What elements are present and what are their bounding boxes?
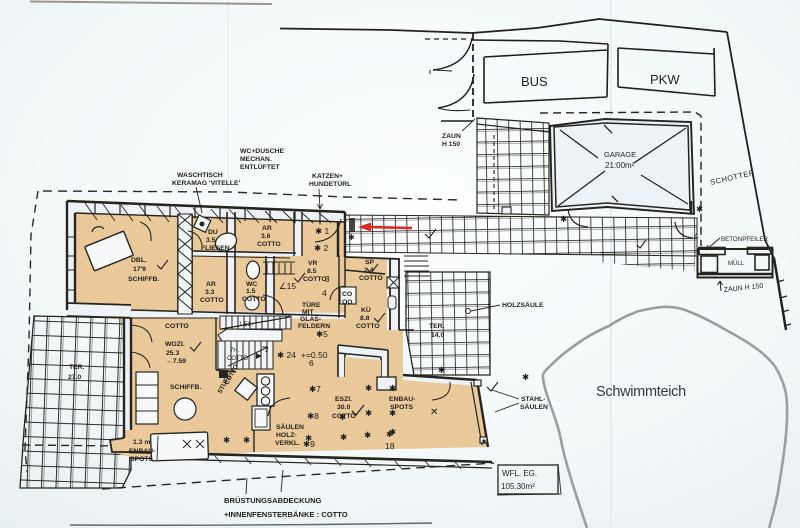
svg-text:CO: CO [342, 291, 352, 298]
svg-text:MIT: MIT [302, 309, 315, 316]
svg-text:TER.: TER. [69, 364, 85, 371]
svg-text:DU: DU [208, 229, 218, 236]
svg-text:WC+DUSCHE: WC+DUSCHE [240, 148, 284, 155]
svg-text:1.51↑: 1.51↑ [239, 322, 254, 328]
svg-text:COTTO: COTTO [356, 323, 380, 330]
svg-text:✱: ✱ [696, 204, 703, 214]
svg-text:SPOTS: SPOTS [130, 456, 154, 463]
svg-text:✱: ✱ [365, 408, 372, 418]
svg-text:COTTO: COTTO [332, 413, 356, 420]
svg-text:KERAMAG 'VITELLE': KERAMAG 'VITELLE' [172, 180, 241, 187]
svg-text:27.0: 27.0 [68, 374, 81, 381]
svg-text:COTTO: COTTO [242, 296, 266, 303]
svg-text:✱ 1: ✱ 1 [315, 226, 329, 236]
svg-text:+=0.50: +=0.50 [301, 350, 328, 360]
svg-text:DBL.: DBL. [131, 257, 147, 264]
svg-text:HUNDETÜRL: HUNDETÜRL [309, 179, 351, 188]
svg-text:✱: ✱ [560, 214, 567, 224]
svg-text:✱: ✱ [438, 365, 445, 375]
svg-text:✱: ✱ [340, 432, 347, 442]
svg-text:✱8: ✱8 [307, 411, 319, 421]
svg-text:STAHL-: STAHL- [521, 396, 545, 403]
svg-text:25.3: 25.3 [166, 350, 179, 357]
svg-text:GLAS-: GLAS- [300, 316, 321, 323]
svg-text:TER.: TER. [429, 323, 445, 330]
svg-text:VR: VR [308, 260, 318, 267]
svg-text:✕: ✕ [430, 407, 438, 418]
svg-text:1.5: 1.5 [246, 288, 256, 295]
svg-text:Schwimmteich: Schwimmteich [596, 384, 686, 400]
svg-text:ENTLÜFTET: ENTLÜFTET [240, 162, 280, 171]
svg-text:WFL. EG.: WFL. EG. [502, 469, 537, 478]
svg-text:✱ 2: ✱ 2 [314, 243, 328, 253]
svg-text:3.6: 3.6 [261, 233, 271, 240]
svg-text:MÜLL: MÜLL [728, 260, 745, 267]
svg-text:WC: WC [246, 281, 257, 288]
svg-text:✱: ✱ [386, 429, 393, 439]
svg-text:SP: SP [365, 259, 375, 266]
svg-text:COTTO: COTTO [165, 323, 189, 330]
svg-text:SCHIFFB.: SCHIFFB. [170, 384, 201, 391]
svg-text:COTTO: COTTO [227, 356, 248, 362]
svg-text:ENBAU-: ENBAU- [389, 396, 415, 403]
svg-text:8.5: 8.5 [307, 268, 317, 275]
svg-text:WOZI.: WOZI. [165, 341, 185, 348]
svg-text:COTTO: COTTO [200, 297, 224, 304]
svg-text:WASCHTISCH: WASCHTISCH [177, 172, 223, 179]
svg-text:AR: AR [206, 281, 216, 288]
svg-text:ZAUN: ZAUN [442, 133, 461, 140]
svg-text:HOLZ-: HOLZ- [276, 432, 297, 439]
svg-text:30.0: 30.0 [337, 404, 350, 411]
svg-text:✱: ✱ [364, 430, 371, 440]
svg-text:ENBAU-: ENBAU- [129, 448, 155, 455]
svg-text:KÜ: KÜ [361, 305, 371, 314]
svg-text:KATZEN+: KATZEN+ [312, 173, 343, 180]
svg-text:✱7: ✱7 [309, 384, 321, 394]
svg-text:ESZI.: ESZI. [335, 396, 352, 403]
svg-text:MECHAN.: MECHAN. [240, 156, 272, 163]
svg-text:105.30m²: 105.30m² [501, 482, 535, 491]
svg-text:SPOTS: SPOTS [390, 404, 414, 411]
svg-text:8.8: 8.8 [360, 315, 370, 322]
svg-text:FLIESEN: FLIESEN [201, 245, 230, 252]
svg-text:21:00m²: 21:00m² [605, 161, 635, 170]
svg-text:SCHIFFB.: SCHIFFB. [128, 276, 159, 283]
svg-text:AR: AR [262, 225, 272, 232]
svg-text:BRÜSTUNGSABDECKUNG: BRÜSTUNGSABDECKUNG [224, 496, 322, 505]
svg-text:COTTO: COTTO [303, 276, 327, 283]
svg-text:+INNENFENSTERBÄNKE : COTTO: +INNENFENSTERBÄNKE : COTTO [224, 510, 348, 519]
svg-text:TÜRE: TÜRE [302, 300, 321, 309]
svg-text:←7.59: ←7.59 [166, 358, 186, 365]
svg-text:COTTO: COTTO [359, 275, 383, 282]
svg-text:VERKL.: VERKL. [275, 440, 300, 447]
svg-text:H 150: H 150 [442, 141, 460, 148]
svg-text:✱5: ✱5 [316, 329, 328, 339]
svg-text:7H.: 7H. [230, 348, 240, 354]
svg-text:BETONPFEILER: BETONPFEILER [721, 236, 769, 243]
svg-text:17'9: 17'9 [133, 266, 146, 273]
svg-text:18: 18 [385, 441, 395, 451]
svg-text:BUS: BUS [521, 74, 548, 89]
svg-text:FELDERN: FELDERN [298, 323, 330, 330]
svg-text:3.3: 3.3 [205, 289, 215, 296]
svg-text:4: 4 [322, 288, 327, 298]
svg-text:COTTO: COTTO [257, 241, 281, 248]
svg-text:✱: ✱ [365, 383, 372, 393]
svg-text:GARAGE: GARAGE [604, 150, 636, 159]
svg-text:6: 6 [309, 358, 314, 368]
svg-text:HOLZSÄULE: HOLZSÄULE [502, 301, 544, 309]
svg-text:OO: OO [342, 299, 353, 306]
svg-text:✱9: ✱9 [303, 439, 315, 449]
svg-text:SÄULEN: SÄULEN [276, 423, 304, 431]
svg-text:✱ 24: ✱ 24 [277, 350, 296, 360]
svg-text:PKW: PKW [650, 72, 680, 87]
svg-text:✱: ✱ [243, 435, 250, 445]
svg-text:3.5: 3.5 [206, 237, 216, 244]
svg-text:✱: ✱ [348, 233, 355, 242]
svg-text:✱: ✱ [223, 435, 230, 445]
svg-text:SÄULEN: SÄULEN [520, 403, 548, 411]
svg-text:✱: ✱ [389, 383, 396, 393]
svg-text:✱: ✱ [522, 372, 529, 382]
svg-text:14.0: 14.0 [431, 332, 444, 339]
svg-text:1.3 m: 1.3 m [133, 439, 150, 446]
svg-text:∠15: ∠15 [279, 281, 296, 291]
